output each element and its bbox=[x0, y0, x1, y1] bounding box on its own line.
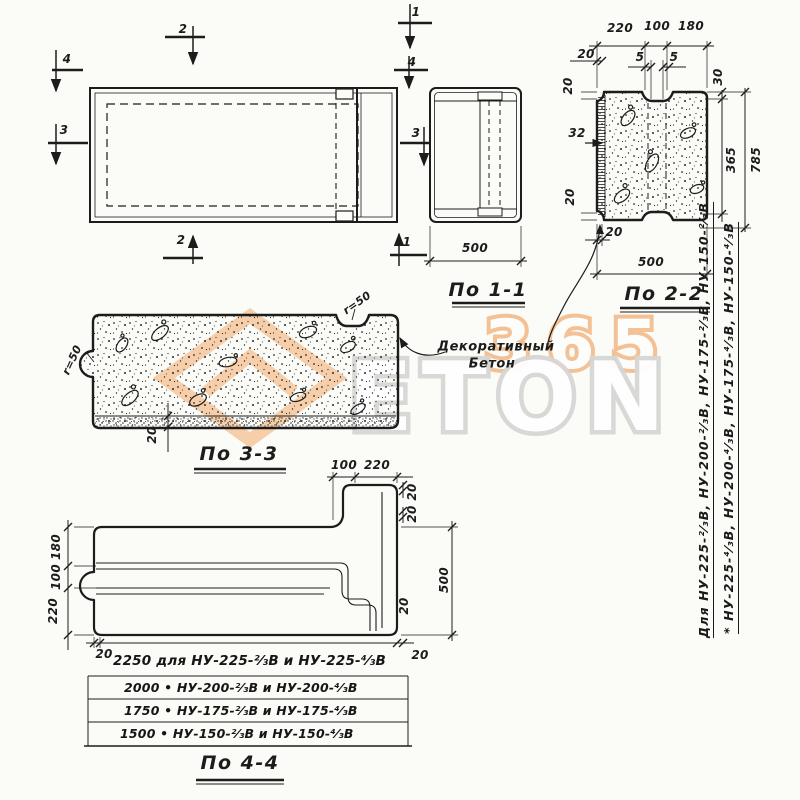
dim-20-bottom-left: 20 bbox=[95, 647, 112, 661]
dim-5-left: 5 bbox=[636, 50, 645, 64]
table-row: 1500 • НУ-150-²⁄₃В и НУ-150-⁴⁄₃В bbox=[120, 726, 354, 741]
side-note-line1: Для НУ-225-²⁄₃В, НУ-200-²⁄₃В, НУ-175-²⁄₃… bbox=[696, 202, 714, 638]
dim-100-left: 100 bbox=[49, 564, 63, 590]
dim-220-view44: 220 bbox=[364, 458, 390, 472]
section-4-4-title: По 4-4 bbox=[201, 752, 280, 774]
section-2-2-title: По 2-2 bbox=[625, 283, 704, 305]
section-mark-3-right: 3 bbox=[412, 126, 421, 140]
section-mark-4-left: 4 bbox=[63, 52, 72, 66]
section-mark-1-bottom: 1 bbox=[403, 235, 412, 249]
dim-20-top: 20 bbox=[577, 47, 594, 61]
dim-365: 365 bbox=[724, 147, 738, 173]
section-1-1-title: По 1-1 bbox=[449, 279, 528, 301]
dim-500-view44: 500 bbox=[437, 567, 451, 593]
drawing-linework bbox=[0, 0, 800, 800]
dim-785: 785 bbox=[749, 147, 763, 173]
dim-220-left: 220 bbox=[46, 598, 60, 624]
dim-20-layer: 20 bbox=[145, 426, 159, 443]
dim-20-right-top2: 20 bbox=[405, 505, 419, 522]
section-mark-4-right: 4 bbox=[408, 55, 417, 69]
blueprint-sheet: 365 ETON bbox=[0, 0, 800, 800]
section-mark-3-left: 3 bbox=[60, 123, 69, 137]
dim-220: 220 bbox=[607, 21, 633, 35]
dim-500-view22: 500 bbox=[638, 255, 664, 269]
table-row: 1750 • НУ-175-²⁄₃В и НУ-175-⁴⁄₃В bbox=[124, 703, 358, 718]
dim-32: 32 bbox=[568, 126, 585, 140]
table-row: 2000 • НУ-200-²⁄₃В и НУ-200-⁴⁄₃В bbox=[124, 680, 358, 695]
table-row: 2250 для НУ-225-²⁄₃В и НУ-225-⁴⁄₃В bbox=[113, 653, 386, 669]
decorative-note-line2: Бетон bbox=[469, 357, 516, 372]
section-mark-2-top: 2 bbox=[179, 22, 188, 36]
decorative-note-line1: Декоративный bbox=[438, 340, 555, 355]
side-note-line2: * НУ-225-⁴⁄₃В, НУ-200-⁴⁄₃В, НУ-175-⁴⁄₃В,… bbox=[721, 222, 739, 634]
dim-30-right: 30 bbox=[711, 68, 725, 85]
dim-20-bottom: 20 bbox=[605, 225, 622, 239]
section-3-3-title: По 3-3 bbox=[200, 443, 279, 465]
plan-view-drawing bbox=[48, 4, 438, 266]
dim-20-side-bottom: 20 bbox=[563, 188, 577, 205]
dim-20-right-bottom2: 20 bbox=[411, 648, 428, 662]
dim-100: 100 bbox=[644, 19, 670, 33]
dim-20-right-bottom: 20 bbox=[397, 597, 411, 614]
section-mark-2-bottom: 2 bbox=[177, 233, 186, 247]
dim-20-right-top1: 20 bbox=[405, 483, 419, 500]
dim-180-left: 180 bbox=[49, 534, 63, 560]
dim-500-view11: 500 bbox=[462, 241, 488, 255]
section-mark-1-top: 1 bbox=[412, 5, 421, 19]
dim-100-view44: 100 bbox=[331, 458, 357, 472]
dim-180: 180 bbox=[678, 19, 704, 33]
section-1-1-drawing bbox=[424, 88, 527, 307]
dim-20-side-top: 20 bbox=[561, 77, 575, 94]
dim-5-right: 5 bbox=[670, 50, 679, 64]
